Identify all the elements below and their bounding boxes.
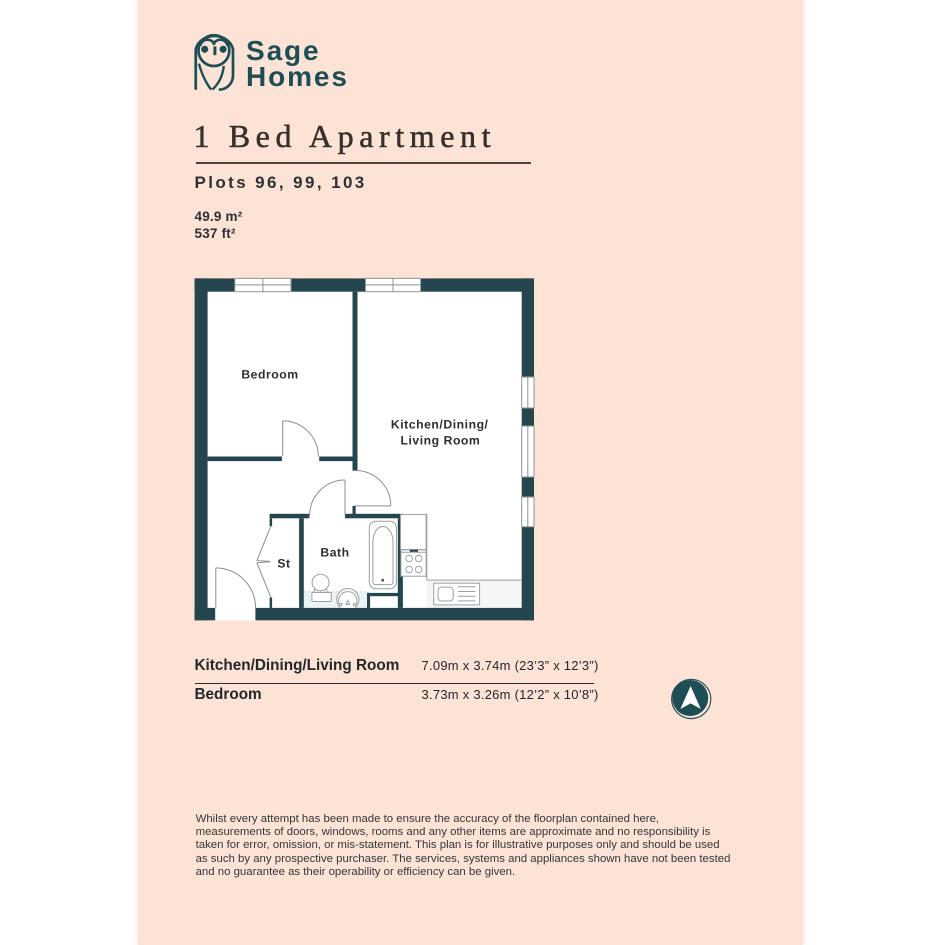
svg-text:Kitchen/Dining/: Kitchen/Dining/ xyxy=(391,418,489,432)
svg-text:Living Room: Living Room xyxy=(400,434,480,448)
svg-text:St: St xyxy=(277,556,290,570)
svg-text:Bedroom: Bedroom xyxy=(241,368,298,382)
svg-text:Bath: Bath xyxy=(320,545,349,559)
